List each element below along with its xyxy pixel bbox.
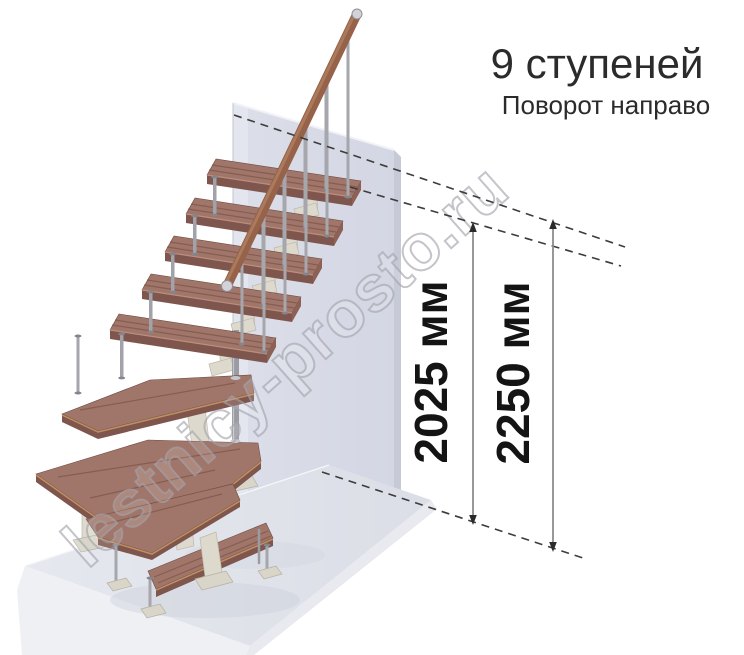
handrail-cap [222,281,233,292]
dimension-label-2250: 2250 мм [487,281,539,464]
handrail-cap [352,9,362,19]
dimension-label-2025: 2025 мм [405,280,457,463]
dimension-arrow-2250 [549,219,557,552]
dimension-arrow-2025 [469,222,477,525]
page-title: 9 ступеней [491,42,704,86]
page-subtitle: Поворот направо [502,92,710,119]
dimension-labels: 2025 мм 2250 мм [405,280,539,464]
staircase-diagram: lestnicy-prosto.ru 2025 мм 2250 мм 9 сту… [0,0,744,655]
